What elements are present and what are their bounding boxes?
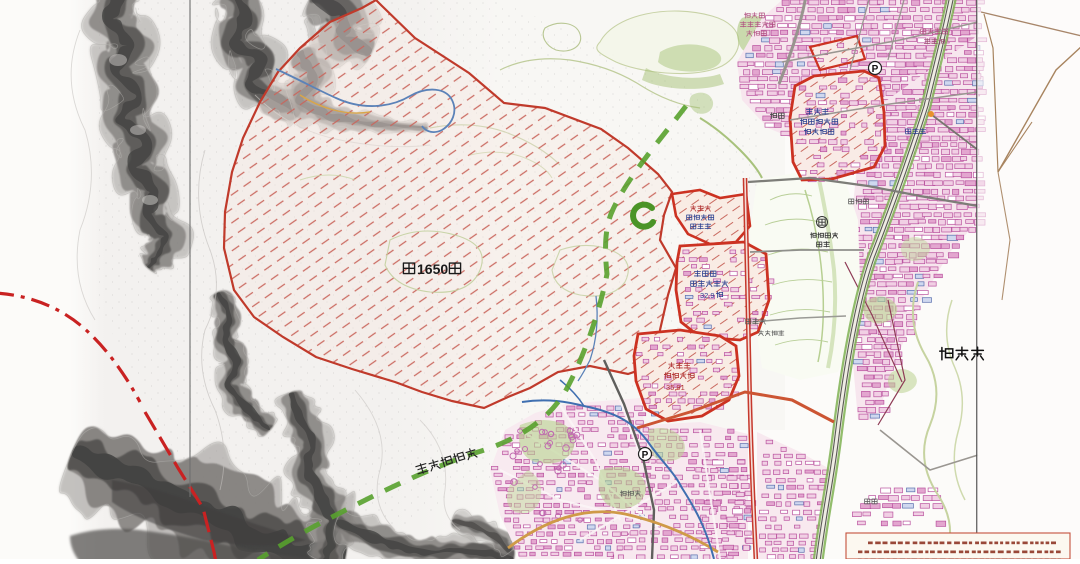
svg-text:P: P: [872, 64, 879, 75]
svg-text:32.9: 32.9: [700, 291, 715, 300]
svg-text:P: P: [642, 450, 649, 461]
svg-text:1650: 1650: [417, 261, 448, 277]
svg-text:35.91: 35.91: [666, 383, 685, 392]
